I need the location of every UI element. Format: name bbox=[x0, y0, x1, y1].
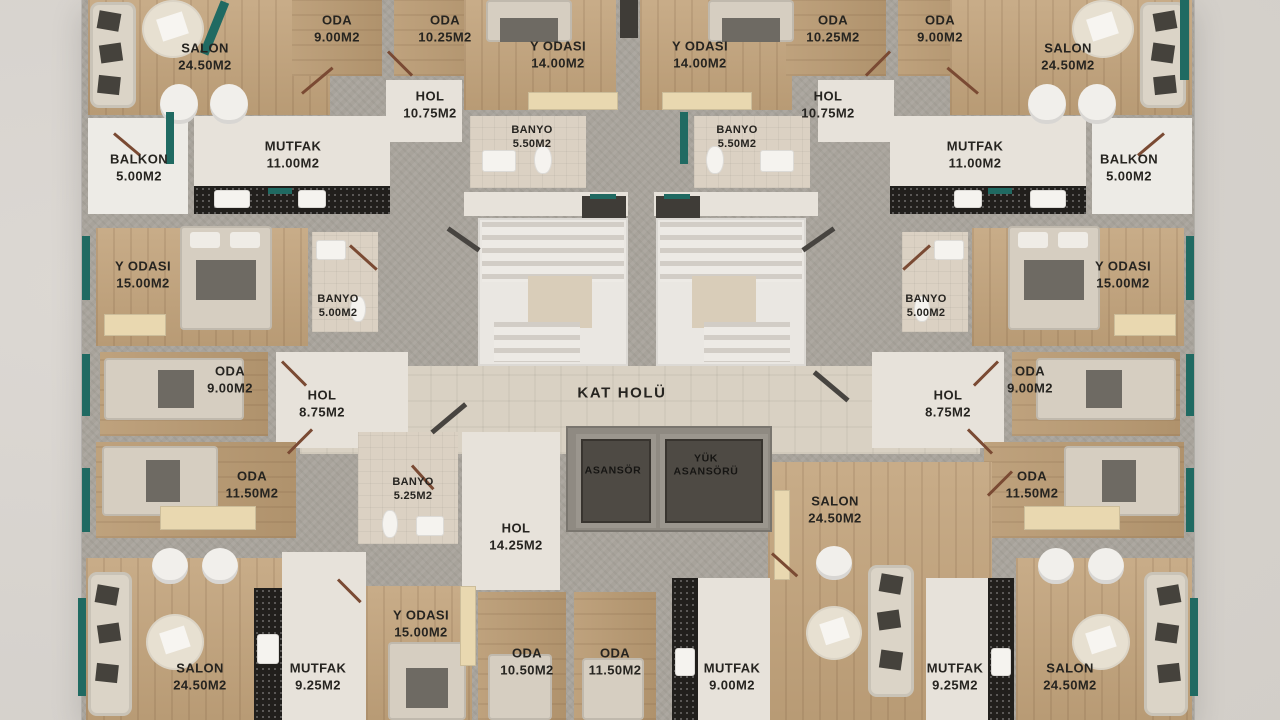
bed-pillow bbox=[1018, 232, 1048, 248]
label-oda-9-top-left: ODA9.00M2 bbox=[314, 12, 360, 45]
bed bbox=[486, 0, 572, 42]
label-mutfak-bottom-right: MUTFAK9.25M2 bbox=[927, 660, 984, 693]
room-name: SALON bbox=[1041, 40, 1094, 57]
room-area: ASANSÖRÜ bbox=[674, 466, 739, 479]
kitchen-bottom-right-floor bbox=[926, 578, 988, 720]
window-sill bbox=[1186, 236, 1194, 300]
room-name: MUTFAK bbox=[947, 138, 1004, 155]
counter-accent bbox=[988, 188, 1012, 194]
room-area: 9.00M2 bbox=[704, 677, 761, 694]
room-area: 24.50M2 bbox=[1043, 677, 1096, 694]
wardrobe bbox=[1024, 506, 1120, 530]
label-salon-center-right: SALON24.50M2 bbox=[808, 493, 861, 526]
stair-treads bbox=[482, 222, 624, 282]
room-name: HOL bbox=[403, 88, 456, 105]
armchair bbox=[1088, 548, 1124, 584]
room-area: 5.00M2 bbox=[905, 306, 946, 320]
sofa bbox=[868, 565, 914, 697]
room-area: 10.25M2 bbox=[418, 29, 471, 46]
armchair bbox=[1078, 84, 1116, 124]
room-area: 10.50M2 bbox=[500, 662, 553, 679]
label-hol-mid-right: HOL8.75M2 bbox=[925, 387, 971, 420]
armchair bbox=[210, 84, 248, 124]
armchair bbox=[152, 548, 188, 584]
label-balkon-right: BALKON5.00M2 bbox=[1100, 151, 1158, 184]
kitchen-sink bbox=[1030, 190, 1066, 208]
room-name: ODA bbox=[1007, 363, 1053, 380]
label-mutfak-top-left: MUTFAK11.00M2 bbox=[265, 138, 322, 171]
room-name: MUTFAK bbox=[290, 660, 347, 677]
label-banyo-550-right: BANYO5.50M2 bbox=[716, 123, 757, 151]
room-area: 10.75M2 bbox=[801, 105, 854, 122]
label-yodasi-14-left: Y ODASI14.00M2 bbox=[530, 38, 586, 71]
room-name: ODA bbox=[917, 12, 963, 29]
stair-treads bbox=[660, 222, 802, 282]
room-name: BANYO bbox=[511, 123, 552, 137]
wardrobe bbox=[160, 506, 256, 530]
room-name: YÜK bbox=[674, 453, 739, 466]
stair-landing bbox=[692, 276, 756, 328]
elevator-yuk-asansoru bbox=[660, 434, 768, 528]
label-oda-1050-bottom: ODA10.50M2 bbox=[500, 645, 553, 678]
room-area: 9.25M2 bbox=[290, 677, 347, 694]
label-oda-9-mid-right: ODA9.00M2 bbox=[1007, 363, 1053, 396]
room-name: HOL bbox=[925, 387, 971, 404]
balcony-rail bbox=[1180, 0, 1189, 80]
room-area: 9.00M2 bbox=[1007, 380, 1053, 397]
window-sill bbox=[664, 194, 690, 199]
room-area: 10.75M2 bbox=[403, 105, 456, 122]
window-sill bbox=[590, 194, 616, 199]
kitchen-sink bbox=[675, 648, 695, 676]
hall-1425-floor bbox=[462, 432, 560, 590]
wall-corner bbox=[447, 226, 481, 252]
room-name: ODA bbox=[1006, 468, 1059, 485]
room-name: HOL bbox=[801, 88, 854, 105]
kitchen-bottom-center-floor bbox=[696, 578, 770, 720]
bed-blanket bbox=[406, 668, 448, 708]
sofa-pillow bbox=[1153, 75, 1177, 95]
bed bbox=[708, 0, 794, 42]
label-mutfak-top-right: MUTFAK11.00M2 bbox=[947, 138, 1004, 171]
window-sill bbox=[82, 468, 90, 532]
kitchen-sink bbox=[214, 190, 250, 208]
label-mutfak-bottom-left: MUTFAK9.25M2 bbox=[290, 660, 347, 693]
label-oda-1025-top-left: ODA10.25M2 bbox=[418, 12, 471, 45]
room-name: SALON bbox=[1043, 660, 1096, 677]
room-name: Y ODASI bbox=[530, 38, 586, 55]
armchair bbox=[816, 546, 852, 580]
room-area: 9.00M2 bbox=[207, 380, 253, 397]
label-hol-top-right: HOL10.75M2 bbox=[801, 88, 854, 121]
window-sill bbox=[1190, 598, 1198, 696]
shaft-door-left bbox=[582, 196, 626, 218]
room-name: ODA bbox=[806, 12, 859, 29]
room-area: 14.00M2 bbox=[672, 55, 728, 72]
room-name: MUTFAK bbox=[265, 138, 322, 155]
room-area: 5.00M2 bbox=[1100, 168, 1158, 185]
stairwell-right bbox=[656, 218, 806, 366]
bed bbox=[1008, 226, 1100, 330]
wardrobe bbox=[104, 314, 166, 336]
room-area: 15.00M2 bbox=[1095, 275, 1151, 292]
bed-blanket bbox=[1102, 460, 1136, 502]
rug-throw bbox=[156, 11, 189, 41]
wardrobe bbox=[528, 92, 618, 110]
sofa bbox=[88, 572, 132, 716]
bed-pillow bbox=[190, 232, 220, 248]
room-name: Y ODASI bbox=[1095, 258, 1151, 275]
building-footprint bbox=[82, 0, 1194, 720]
stove bbox=[954, 190, 982, 208]
label-salon-top-left: SALON24.50M2 bbox=[178, 40, 231, 73]
label-hol-1425: HOL14.25M2 bbox=[489, 520, 542, 553]
kitchen-sink bbox=[257, 634, 279, 664]
room-name: KAT HOLÜ bbox=[577, 383, 666, 402]
sofa-pillow bbox=[877, 610, 901, 631]
label-oda-1025-top-right: ODA10.25M2 bbox=[806, 12, 859, 45]
label-banyo-550-left: BANYO5.50M2 bbox=[511, 123, 552, 151]
room-name: ODA bbox=[226, 468, 279, 485]
room-name: MUTFAK bbox=[927, 660, 984, 677]
room-name: ODA bbox=[314, 12, 360, 29]
bed bbox=[1036, 358, 1176, 420]
wardrobe bbox=[662, 92, 752, 110]
room-area: 24.50M2 bbox=[808, 510, 861, 527]
bed-blanket bbox=[1024, 260, 1084, 300]
stair-landing bbox=[528, 276, 592, 328]
room-name: SALON bbox=[178, 40, 231, 57]
label-yuk-asansoru: YÜKASANSÖRÜ bbox=[674, 453, 739, 480]
toilet bbox=[382, 510, 398, 538]
bathroom-sink bbox=[934, 240, 964, 260]
window-sill bbox=[82, 236, 90, 300]
window-sill bbox=[680, 112, 688, 164]
bed-blanket bbox=[722, 18, 780, 42]
bed-blanket bbox=[146, 460, 180, 502]
room-area: 14.00M2 bbox=[530, 55, 586, 72]
sofa bbox=[90, 2, 136, 108]
label-yodasi-15-bottom: Y ODASI15.00M2 bbox=[393, 607, 449, 640]
room-name: BANYO bbox=[905, 292, 946, 306]
room-area: 15.00M2 bbox=[393, 624, 449, 641]
room-area: 24.50M2 bbox=[1041, 57, 1094, 74]
armchair bbox=[1038, 548, 1074, 584]
room-area: 5.00M2 bbox=[110, 168, 168, 185]
room-name: Y ODASI bbox=[115, 258, 171, 275]
bed-pillow bbox=[1058, 232, 1088, 248]
sofa-pillow bbox=[879, 650, 903, 671]
sofa-pillow bbox=[97, 75, 121, 95]
bed bbox=[180, 226, 272, 330]
label-oda-9-mid-left: ODA9.00M2 bbox=[207, 363, 253, 396]
room-name: BANYO bbox=[317, 292, 358, 306]
bathroom-sink bbox=[416, 516, 444, 536]
window-sill bbox=[82, 354, 90, 416]
room-area: 11.50M2 bbox=[589, 662, 642, 679]
sofa-pillow bbox=[97, 10, 122, 32]
room-area: 9.25M2 bbox=[927, 677, 984, 694]
window-sill bbox=[1186, 354, 1194, 416]
sofa-pillow bbox=[97, 623, 121, 644]
room-name: HOL bbox=[299, 387, 345, 404]
bathroom-sink bbox=[316, 240, 346, 260]
window-sill bbox=[78, 598, 86, 696]
room-name: Y ODASI bbox=[393, 607, 449, 624]
label-kat-holu: KAT HOLÜ bbox=[577, 383, 666, 402]
room-name: ODA bbox=[418, 12, 471, 29]
room-name: BALKON bbox=[1100, 151, 1158, 168]
stairwell-left bbox=[478, 218, 628, 366]
kitchen-bottom-left-floor bbox=[282, 552, 366, 720]
room-area: 11.00M2 bbox=[265, 155, 322, 172]
sofa-pillow bbox=[1153, 10, 1178, 32]
label-banyo-525: BANYO5.25M2 bbox=[392, 475, 433, 503]
room-area: 24.50M2 bbox=[178, 57, 231, 74]
sofa bbox=[1144, 572, 1188, 716]
label-oda-1150-left: ODA11.50M2 bbox=[226, 468, 279, 501]
room-area: 11.00M2 bbox=[947, 155, 1004, 172]
wardrobe bbox=[460, 586, 476, 666]
label-banyo-500-left: BANYO5.00M2 bbox=[317, 292, 358, 320]
room-name: BALKON bbox=[110, 151, 168, 168]
room-area: 15.00M2 bbox=[115, 275, 171, 292]
label-asansor: ASANSÖR bbox=[585, 464, 642, 477]
rug bbox=[806, 606, 862, 660]
sofa-pillow bbox=[879, 573, 904, 595]
label-salon-top-right: SALON24.50M2 bbox=[1041, 40, 1094, 73]
label-yodasi-15-left: Y ODASI15.00M2 bbox=[115, 258, 171, 291]
room-area: 8.75M2 bbox=[299, 404, 345, 421]
counter-accent bbox=[268, 188, 292, 194]
room-name: HOL bbox=[489, 520, 542, 537]
room-name: BANYO bbox=[392, 475, 433, 489]
room-area: 11.50M2 bbox=[1006, 485, 1059, 502]
room-area: 9.00M2 bbox=[917, 29, 963, 46]
room-name: SALON bbox=[173, 660, 226, 677]
bathroom-sink bbox=[482, 150, 516, 172]
wardrobe bbox=[1114, 314, 1176, 336]
sofa-pillow bbox=[99, 43, 123, 64]
room-name: MUTFAK bbox=[704, 660, 761, 677]
label-balkon-left: BALKON5.00M2 bbox=[110, 151, 168, 184]
room-area: 11.50M2 bbox=[226, 485, 279, 502]
room-area: 10.25M2 bbox=[806, 29, 859, 46]
sofa-pillow bbox=[95, 663, 119, 683]
bed-blanket bbox=[158, 370, 194, 408]
sofa-pillow bbox=[1157, 663, 1181, 683]
room-area: 24.50M2 bbox=[173, 677, 226, 694]
label-salon-bottom-right: SALON24.50M2 bbox=[1043, 660, 1096, 693]
room-area: 5.00M2 bbox=[317, 306, 358, 320]
room-name: Y ODASI bbox=[672, 38, 728, 55]
room-name: SALON bbox=[808, 493, 861, 510]
armchair bbox=[1028, 84, 1066, 124]
room-name: ODA bbox=[207, 363, 253, 380]
duct-top-center bbox=[620, 0, 638, 38]
rug-throw bbox=[819, 617, 849, 645]
rug-throw bbox=[159, 625, 190, 654]
rug-throw bbox=[1086, 11, 1119, 41]
armchair bbox=[202, 548, 238, 584]
sofa-pillow bbox=[95, 584, 120, 606]
label-oda-1150-right: ODA11.50M2 bbox=[1006, 468, 1059, 501]
bathroom-sink bbox=[760, 150, 794, 172]
sofa-pillow bbox=[1151, 43, 1175, 64]
room-area: 5.25M2 bbox=[392, 489, 433, 503]
label-banyo-500-right: BANYO5.00M2 bbox=[905, 292, 946, 320]
room-area: 9.00M2 bbox=[314, 29, 360, 46]
room-name: ODA bbox=[589, 645, 642, 662]
label-hol-mid-left: HOL8.75M2 bbox=[299, 387, 345, 420]
bed-blanket bbox=[196, 260, 256, 300]
room-name: ODA bbox=[500, 645, 553, 662]
stair-treads bbox=[494, 322, 580, 362]
label-yodasi-14-right: Y ODASI14.00M2 bbox=[672, 38, 728, 71]
wall-corner bbox=[801, 226, 835, 252]
window-sill bbox=[1186, 468, 1194, 532]
room-area: 8.75M2 bbox=[925, 404, 971, 421]
bed-pillow bbox=[230, 232, 260, 248]
stair-treads bbox=[704, 322, 790, 362]
room-area: 14.25M2 bbox=[489, 537, 542, 554]
room-area: 5.50M2 bbox=[716, 137, 757, 151]
stove bbox=[298, 190, 326, 208]
shaft-door-right bbox=[656, 196, 700, 218]
label-salon-bottom-left: SALON24.50M2 bbox=[173, 660, 226, 693]
bed-blanket bbox=[1086, 370, 1122, 408]
room-name: BANYO bbox=[716, 123, 757, 137]
rug-throw bbox=[1085, 625, 1116, 654]
floor-plan: SALON24.50M2 ODA9.00M2 ODA10.25M2 Y ODAS… bbox=[0, 0, 1280, 720]
label-yodasi-15-right: Y ODASI15.00M2 bbox=[1095, 258, 1151, 291]
label-hol-top-left: HOL10.75M2 bbox=[403, 88, 456, 121]
room-name: ASANSÖR bbox=[585, 464, 642, 477]
sofa-pillow bbox=[1157, 584, 1182, 606]
label-oda-9-top-right: ODA9.00M2 bbox=[917, 12, 963, 45]
label-oda-1150-bottom: ODA11.50M2 bbox=[589, 645, 642, 678]
bed bbox=[388, 642, 466, 720]
room-area: 5.50M2 bbox=[511, 137, 552, 151]
label-mutfak-bottom-center: MUTFAK9.00M2 bbox=[704, 660, 761, 693]
kitchen-sink bbox=[991, 648, 1011, 676]
sofa-pillow bbox=[1155, 623, 1179, 644]
elevator-asansor bbox=[576, 434, 656, 528]
